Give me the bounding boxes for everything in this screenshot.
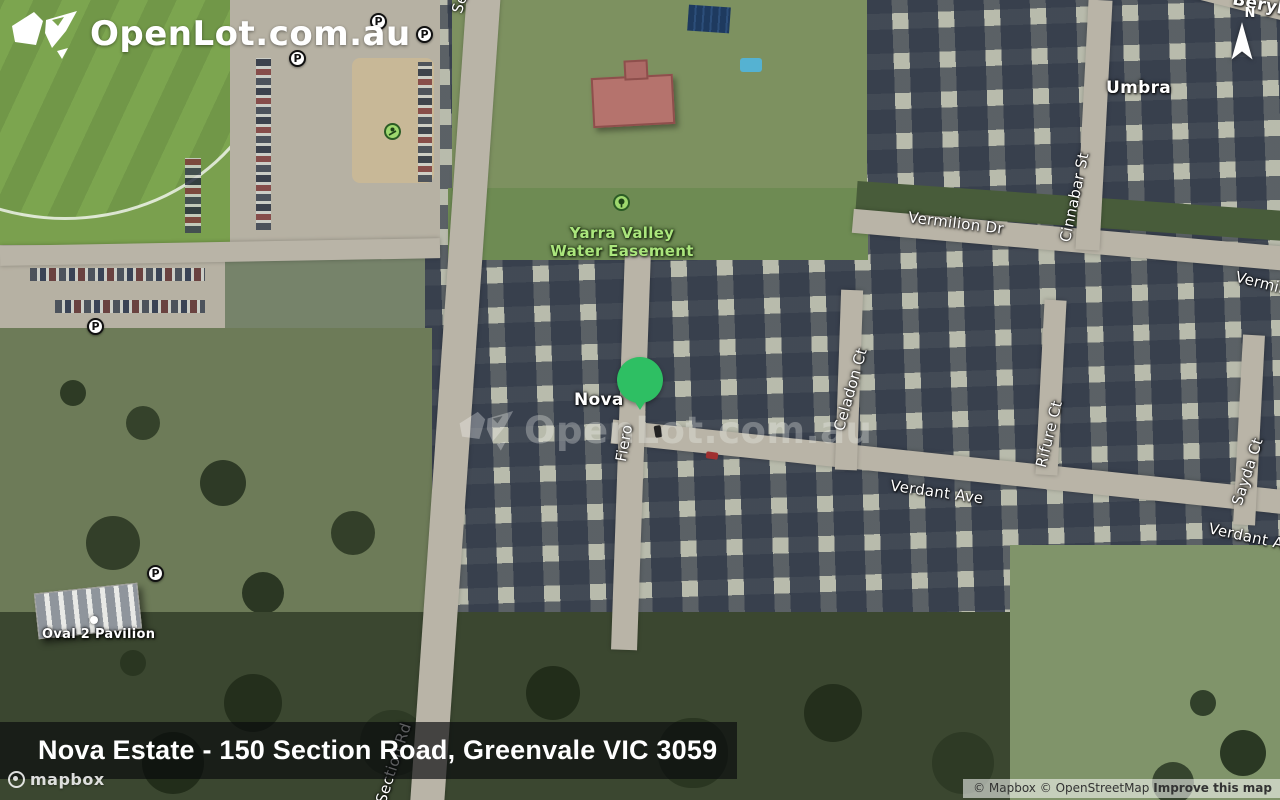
- map-attribution: © Mapbox © OpenStreetMap Improve this ma…: [963, 779, 1280, 798]
- bushland-trees: [60, 380, 86, 406]
- north-arrow-icon: [1226, 21, 1258, 63]
- place-label-oval-pavilion: Oval 2 Pavilion: [42, 627, 155, 642]
- lot-location-marker[interactable]: [617, 357, 663, 403]
- openlot-logo-text: OpenLot.com.au: [90, 14, 411, 54]
- swimming-pool: [740, 58, 762, 72]
- mapbox-logo[interactable]: mapbox: [8, 770, 105, 789]
- red-roof-house: [591, 74, 676, 128]
- bushland-trees: [120, 650, 146, 676]
- park-tree-icon: [613, 194, 630, 211]
- parked-cars-row: [418, 62, 432, 182]
- satellite-map[interactable]: P P P P P Section Section Rd Beryl C Umb…: [0, 0, 1280, 800]
- improve-this-map-link[interactable]: Improve this map: [1153, 781, 1272, 795]
- place-label-umbra: Umbra: [1106, 78, 1171, 98]
- parking-icon: P: [87, 318, 104, 335]
- label-yarra-easement-line2: Water Easement: [550, 242, 693, 260]
- attribution-mapbox[interactable]: © Mapbox: [973, 781, 1036, 795]
- mapbox-logo-text: mapbox: [30, 770, 105, 789]
- parked-cars-row: [30, 268, 205, 281]
- red-car: [706, 451, 719, 460]
- estate-title-bar: Nova Estate - 150 Section Road, Greenval…: [0, 722, 737, 779]
- parking-icon: P: [147, 565, 164, 582]
- marker-tail: [633, 399, 647, 410]
- compass: N: [1226, 6, 1258, 67]
- attribution-osm[interactable]: © OpenStreetMap: [1040, 781, 1150, 795]
- red-roof-house-wing: [623, 59, 648, 80]
- field-trees: [1190, 690, 1216, 716]
- label-yarra-easement-line1: Yarra Valley: [570, 224, 675, 242]
- marker-head: [617, 357, 663, 403]
- parked-cars-row: [185, 158, 201, 233]
- parking-letter: P: [91, 320, 99, 333]
- parking-letter: P: [420, 28, 428, 41]
- parking-letter: P: [151, 567, 159, 580]
- openlot-logo: OpenLot.com.au: [10, 8, 411, 60]
- solar-roof-house: [687, 5, 731, 34]
- playground-icon: [384, 123, 401, 140]
- parking-icon: P: [416, 26, 433, 43]
- poi-dot: [90, 616, 98, 624]
- field-southeast: [1010, 545, 1280, 800]
- parked-cars-row: [256, 58, 271, 230]
- compass-north-label: N: [1234, 6, 1266, 21]
- openlot-australia-icon: [10, 8, 78, 60]
- mapbox-icon: [8, 771, 25, 788]
- parked-cars-row: [55, 300, 205, 313]
- estate-title-text: Nova Estate - 150 Section Road, Greenval…: [38, 735, 717, 765]
